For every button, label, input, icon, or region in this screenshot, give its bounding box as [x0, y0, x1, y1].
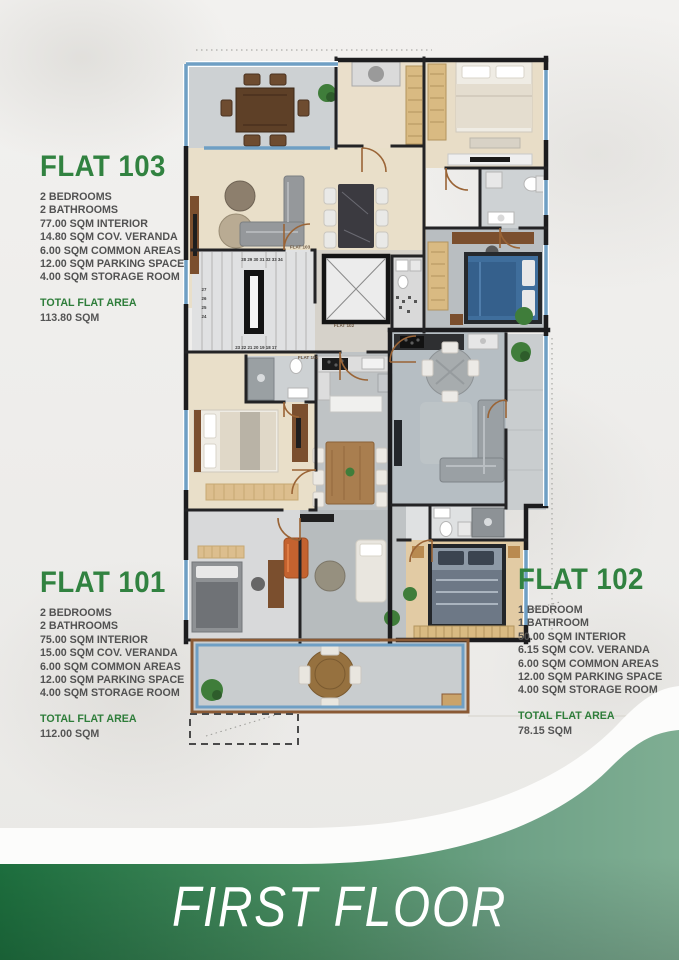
washbasin-unit	[486, 172, 502, 188]
door-bedroom1-103	[446, 168, 468, 190]
nightstand	[412, 546, 424, 558]
stair-number: 24	[202, 314, 207, 319]
spec-line: 4.00 SQM STORAGE ROOM	[40, 271, 184, 284]
spec-line: 50.00 SQM INTERIOR	[518, 631, 662, 644]
total-area-label: TOTAL FLAT AREA	[40, 297, 184, 309]
tv-unit	[394, 420, 402, 466]
flat-101-title: FLAT 101	[40, 568, 177, 598]
plan-label-flat-102: FLAT 102	[334, 323, 355, 328]
sink	[288, 388, 308, 398]
spec-line: 14.80 SQM COV. VERANDA	[40, 231, 184, 244]
floor-title: FIRST FLOOR	[54, 874, 624, 940]
spec-line: 75.00 SQM INTERIOR	[40, 634, 184, 647]
spec-line: 2 BEDROOMS	[40, 191, 184, 204]
spec-line: 2 BATHROOMS	[40, 204, 184, 217]
pouf	[315, 561, 345, 591]
tv	[470, 157, 510, 162]
nightstand	[450, 314, 463, 325]
wardrobe	[428, 64, 446, 140]
stair-number: 25	[202, 305, 207, 310]
utility-room	[392, 256, 424, 330]
total-area-value: 113.80 SQM	[40, 312, 184, 324]
nightstand	[508, 546, 520, 558]
spec-line: 2 BATHROOMS	[40, 620, 184, 633]
stair-number: 26	[202, 296, 207, 301]
spec-line: 2 BEDROOMS	[40, 607, 184, 620]
tv	[296, 418, 301, 448]
plant	[403, 587, 417, 601]
bench	[470, 138, 520, 148]
closet	[406, 66, 424, 144]
flat-102-title: FLAT 102	[518, 565, 655, 595]
washer	[458, 522, 471, 536]
toilet	[440, 522, 452, 537]
plant	[515, 307, 533, 325]
wardrobe	[414, 626, 514, 638]
desk	[452, 232, 534, 244]
plan-label-flat-103: FLAT 103	[290, 245, 311, 250]
poster: FLAT 103 FLAT 102 FLAT 101 28 29 30 31 3…	[0, 0, 679, 960]
spec-line: 12.00 SQM PARKING SPACE	[40, 258, 184, 271]
spec-line: 1 BATHROOM	[518, 617, 662, 630]
flat-103-info: FLAT 103 2 BEDROOMS 2 BATHROOMS 77.00 SQ…	[40, 152, 189, 324]
desk-chair	[251, 577, 265, 591]
spec-line: 1 BEDROOM	[518, 604, 662, 617]
dining-101-furniture	[313, 442, 387, 507]
armchair	[225, 181, 255, 211]
desk	[268, 560, 284, 608]
stair-numbers-top: 28 29 30 31 32 33 34	[241, 257, 283, 262]
rug	[420, 402, 472, 464]
stair-numbers-bottom: 23 22 21 20 19 18 17	[235, 345, 277, 350]
rug	[198, 546, 244, 558]
island	[330, 396, 382, 412]
spec-line: 77.00 SQM INTERIOR	[40, 218, 184, 231]
plan-label-flat-101: FLAT 101	[298, 355, 319, 360]
tv	[300, 514, 334, 522]
sink	[362, 358, 384, 369]
sink	[434, 508, 450, 518]
flat-103-title: FLAT 103	[40, 152, 177, 182]
stair-number: 27	[202, 287, 207, 292]
elevator	[324, 256, 388, 322]
toilet	[290, 359, 302, 374]
spec-line: 6.00 SQM COMMON AREAS	[40, 245, 184, 258]
